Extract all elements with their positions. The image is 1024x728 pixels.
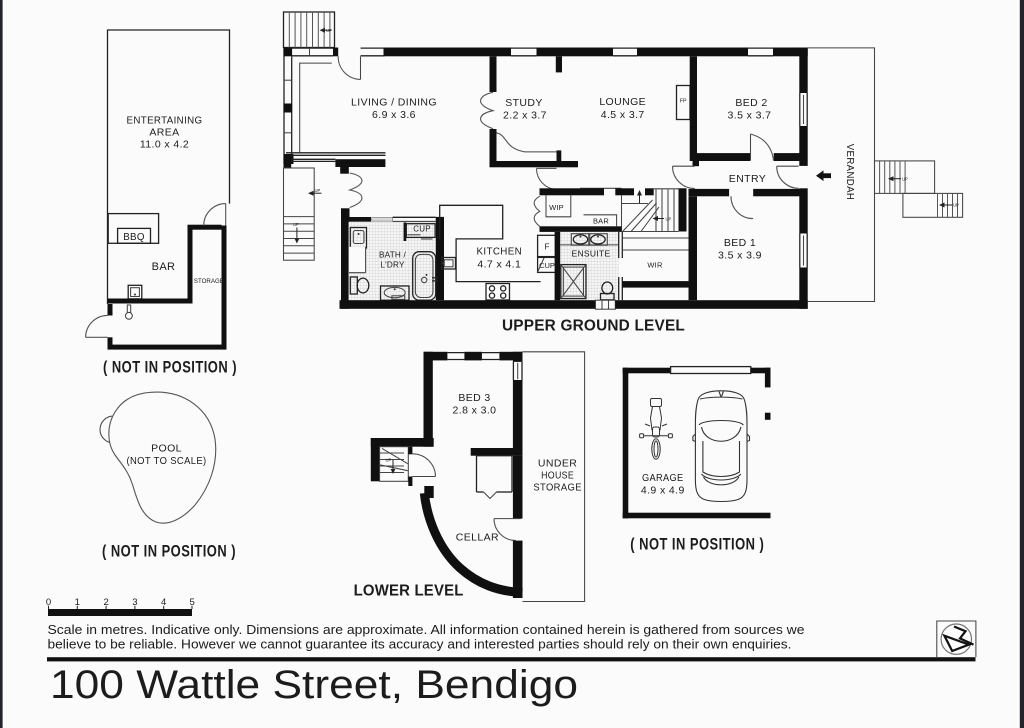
svg-text:BATH /: BATH /: [379, 251, 407, 260]
svg-text:4.7 x 4.1: 4.7 x 4.1: [477, 259, 521, 271]
svg-text:STUDY: STUDY: [505, 97, 543, 109]
svg-text:UP: UP: [666, 216, 672, 221]
svg-text:6.9 x 3.6: 6.9 x 3.6: [372, 109, 416, 121]
svg-text:( NOT IN POSITION ): ( NOT IN POSITION ): [102, 543, 236, 561]
svg-text:(NOT TO SCALE): (NOT TO SCALE): [127, 455, 207, 467]
svg-text:Scale in metres. Indicative on: Scale in metres. Indicative only. Dimens…: [48, 623, 805, 637]
svg-text:UP: UP: [386, 457, 392, 462]
svg-text:4.5 x 3.7: 4.5 x 3.7: [601, 109, 645, 121]
svg-text:2.8 x 3.0: 2.8 x 3.0: [453, 405, 497, 417]
svg-text:WIR: WIR: [647, 260, 663, 269]
svg-text:3.5 x 3.7: 3.5 x 3.7: [728, 110, 772, 122]
svg-text:UP: UP: [293, 222, 299, 227]
svg-text:STORAGE: STORAGE: [533, 482, 582, 494]
svg-text:VERANDAH: VERANDAH: [844, 144, 856, 201]
svg-text:CUP: CUP: [413, 224, 431, 233]
svg-text:( NOT IN POSITION ): ( NOT IN POSITION ): [630, 536, 764, 554]
svg-text:2.2 x 3.7: 2.2 x 3.7: [503, 110, 547, 122]
svg-text:STORAGE: STORAGE: [194, 278, 224, 285]
svg-text:BAR: BAR: [593, 217, 609, 226]
svg-text:LIVING / DINING: LIVING / DINING: [351, 97, 437, 109]
svg-text:UPPER GROUND LEVEL: UPPER GROUND LEVEL: [502, 317, 685, 334]
svg-text:AREA: AREA: [149, 127, 179, 139]
svg-text:BBQ: BBQ: [123, 232, 145, 243]
svg-text:ENSUITE: ENSUITE: [572, 248, 611, 258]
svg-text:11.0 x 4.2: 11.0 x 4.2: [140, 139, 189, 151]
svg-text:BAR: BAR: [152, 261, 176, 273]
svg-text:CUP: CUP: [539, 261, 555, 270]
svg-text:UP: UP: [902, 176, 908, 181]
svg-text:100 Wattle Street, Bendigo: 100 Wattle Street, Bendigo: [50, 663, 578, 707]
svg-text:BED 1: BED 1: [724, 237, 756, 249]
svg-text:HOUSE: HOUSE: [541, 470, 574, 482]
svg-text:4.9 x 4.9: 4.9 x 4.9: [641, 485, 685, 497]
svg-text:UP: UP: [315, 188, 321, 193]
svg-text:UNDER: UNDER: [538, 458, 577, 470]
svg-text:GARAGE: GARAGE: [642, 472, 684, 484]
svg-text:UP: UP: [326, 28, 332, 33]
svg-text:LOUNGE: LOUNGE: [599, 96, 646, 108]
svg-text:L'DRY: L'DRY: [380, 261, 405, 270]
svg-text:UP: UP: [953, 203, 959, 208]
svg-text:KITCHEN: KITCHEN: [477, 246, 523, 258]
svg-text:CELLAR: CELLAR: [456, 532, 499, 544]
svg-text:BED 2: BED 2: [735, 97, 767, 109]
svg-text:ENTRY: ENTRY: [729, 173, 766, 185]
svg-text:POOL: POOL: [151, 443, 182, 455]
svg-text:ENTERTAINING: ENTERTAINING: [127, 115, 203, 127]
svg-text:( NOT IN POSITION ): ( NOT IN POSITION ): [103, 359, 237, 377]
svg-text:FP: FP: [680, 98, 687, 104]
svg-text:3.5 x 3.9: 3.5 x 3.9: [718, 250, 762, 262]
svg-text:believe to be reliable. Howeve: believe to be reliable. However we canno…: [48, 638, 792, 652]
svg-text:WIP: WIP: [549, 203, 564, 212]
svg-text:LOWER LEVEL: LOWER LEVEL: [354, 583, 464, 600]
svg-text:BED 3: BED 3: [458, 392, 490, 404]
svg-text:F: F: [545, 242, 550, 251]
